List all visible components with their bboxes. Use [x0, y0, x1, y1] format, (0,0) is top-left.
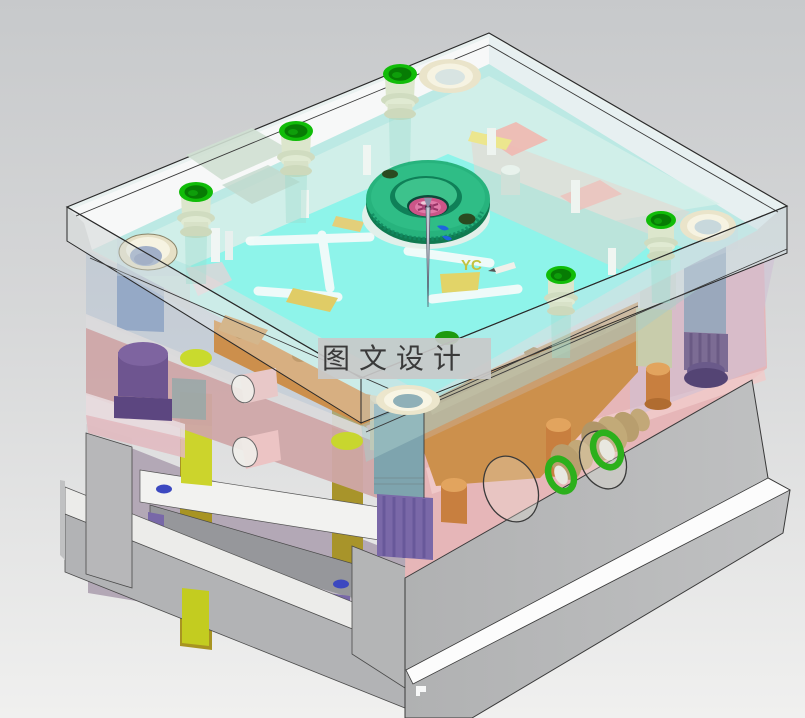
svg-text:图文设计: 图文设计	[322, 343, 470, 374]
svg-text:YC: YC	[461, 257, 482, 274]
